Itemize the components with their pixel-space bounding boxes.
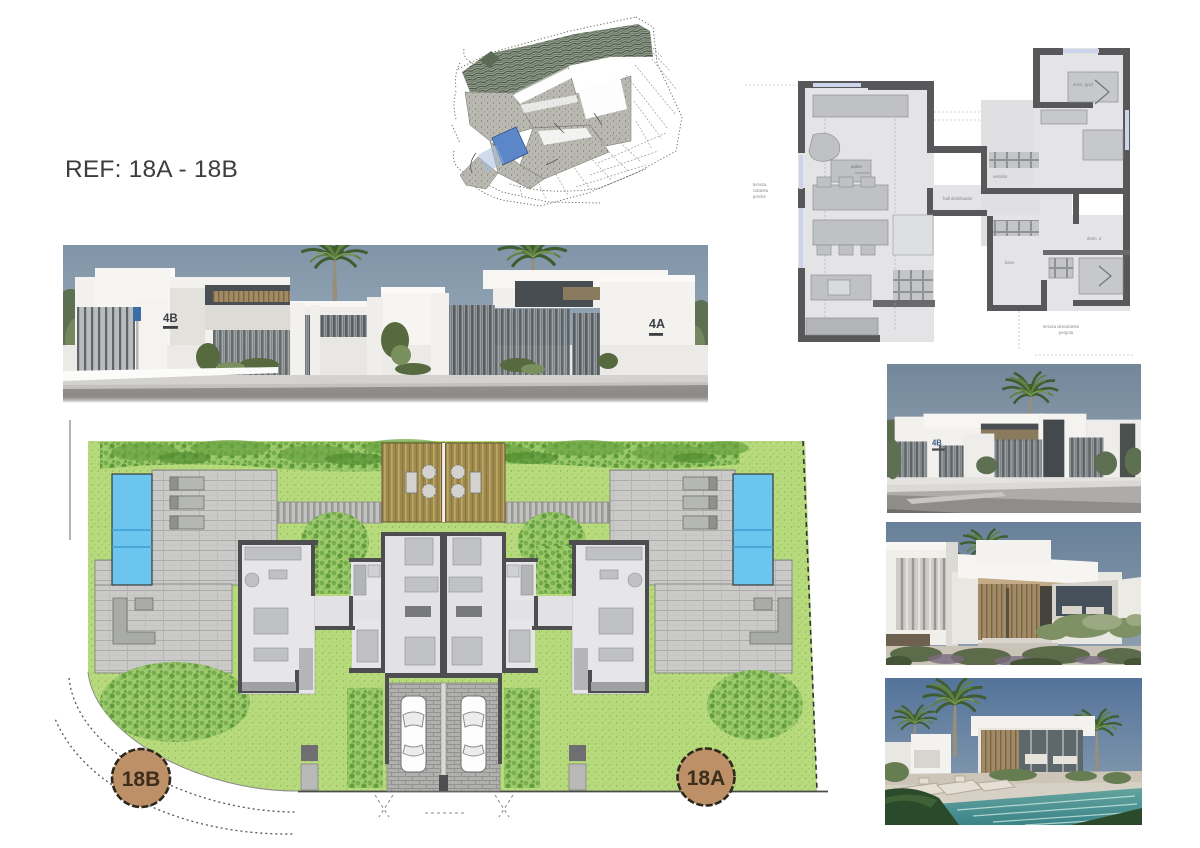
- svg-text:terraza: terraza: [753, 182, 767, 187]
- svg-text:cubierta: cubierta: [753, 188, 769, 193]
- svg-text:comedor: comedor: [855, 171, 871, 175]
- svg-text:18B: 18B: [122, 768, 161, 791]
- svg-text:dorm. ppal: dorm. ppal: [1073, 82, 1093, 87]
- svg-text:terraza descubierta: terraza descubierta: [1043, 324, 1080, 329]
- svg-text:hall distribuidor: hall distribuidor: [943, 196, 973, 201]
- svg-text:4B: 4B: [932, 438, 942, 447]
- svg-text:4B: 4B: [163, 313, 178, 325]
- svg-text:porche: porche: [753, 194, 766, 199]
- svg-text:dorm. 2: dorm. 2: [1087, 236, 1102, 241]
- svg-text:vestidor: vestidor: [993, 174, 1008, 179]
- svg-text:pergola: pergola: [1059, 330, 1074, 335]
- svg-text:salon: salon: [851, 164, 862, 169]
- svg-text:bano: bano: [1005, 260, 1015, 265]
- svg-text:18A: 18A: [687, 767, 726, 790]
- svg-text:4A: 4A: [649, 317, 665, 331]
